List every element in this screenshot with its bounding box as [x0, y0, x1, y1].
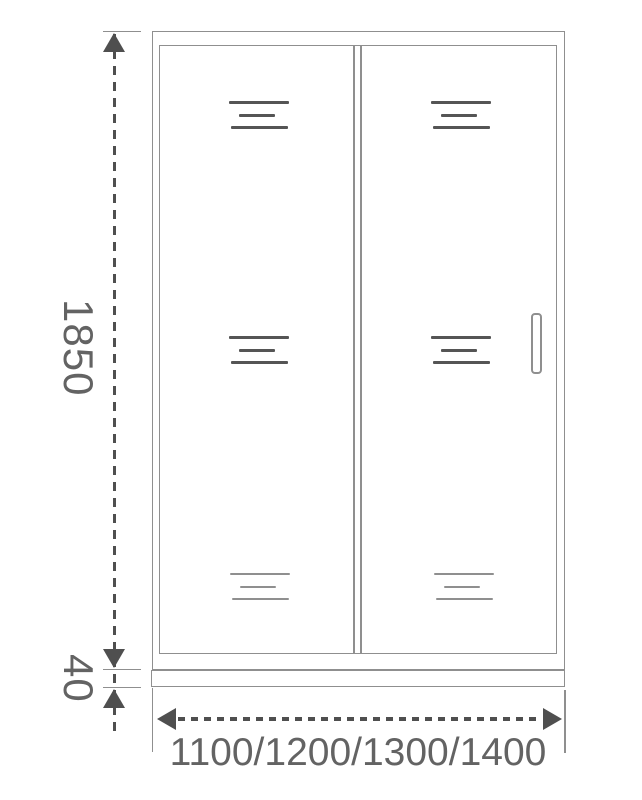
glass-mark-line	[433, 361, 490, 364]
glass-mark-line	[436, 598, 493, 600]
width-dimension-label: 1100/1200/1300/1400	[160, 733, 556, 773]
arrow-down-icon	[103, 649, 125, 668]
glass-mark-line	[240, 586, 276, 588]
arrow-up-icon	[103, 689, 125, 708]
dimension-tick	[103, 31, 141, 33]
glass-mark-line	[433, 126, 490, 129]
glass-mark-set	[431, 101, 493, 130]
glass-mark-line	[431, 101, 491, 104]
arrow-right-icon	[543, 708, 562, 730]
glass-mark-line	[229, 101, 289, 104]
dimension-tick	[103, 687, 141, 689]
center-divider	[353, 46, 362, 653]
glass-mark-line	[239, 349, 275, 352]
glass-mark-set	[229, 101, 291, 130]
glass-mark-line	[231, 361, 288, 364]
glass-mark-set	[229, 336, 291, 365]
glass-mark-line	[230, 573, 290, 575]
base-height-dimension-label: 40	[54, 651, 102, 705]
dimension-extension-line	[152, 688, 154, 752]
height-dimension-label: 1850	[54, 292, 102, 404]
dimension-extension-line	[564, 690, 566, 753]
glass-mark-set	[431, 336, 493, 365]
height-dimension-line	[113, 34, 117, 734]
glass-mark-line	[431, 336, 491, 339]
glass-mark-line	[441, 114, 477, 117]
glass-mark-set	[434, 573, 496, 602]
glass-mark-line	[229, 336, 289, 339]
door-handle	[531, 313, 542, 374]
width-dimension-line	[178, 717, 542, 721]
arrow-left-icon	[157, 708, 176, 730]
technical-drawing: 1850 40 1100/1200/1300/1400	[0, 0, 642, 800]
dimension-tick	[103, 669, 141, 671]
glass-mark-line	[444, 586, 480, 588]
glass-mark-line	[239, 114, 275, 117]
glass-mark-line	[232, 598, 289, 600]
glass-mark-line	[434, 573, 494, 575]
shower-tray	[151, 670, 565, 687]
glass-mark-line	[231, 126, 288, 129]
glass-mark-set	[230, 573, 292, 602]
glass-mark-line	[441, 349, 477, 352]
arrow-up-icon	[103, 33, 125, 52]
